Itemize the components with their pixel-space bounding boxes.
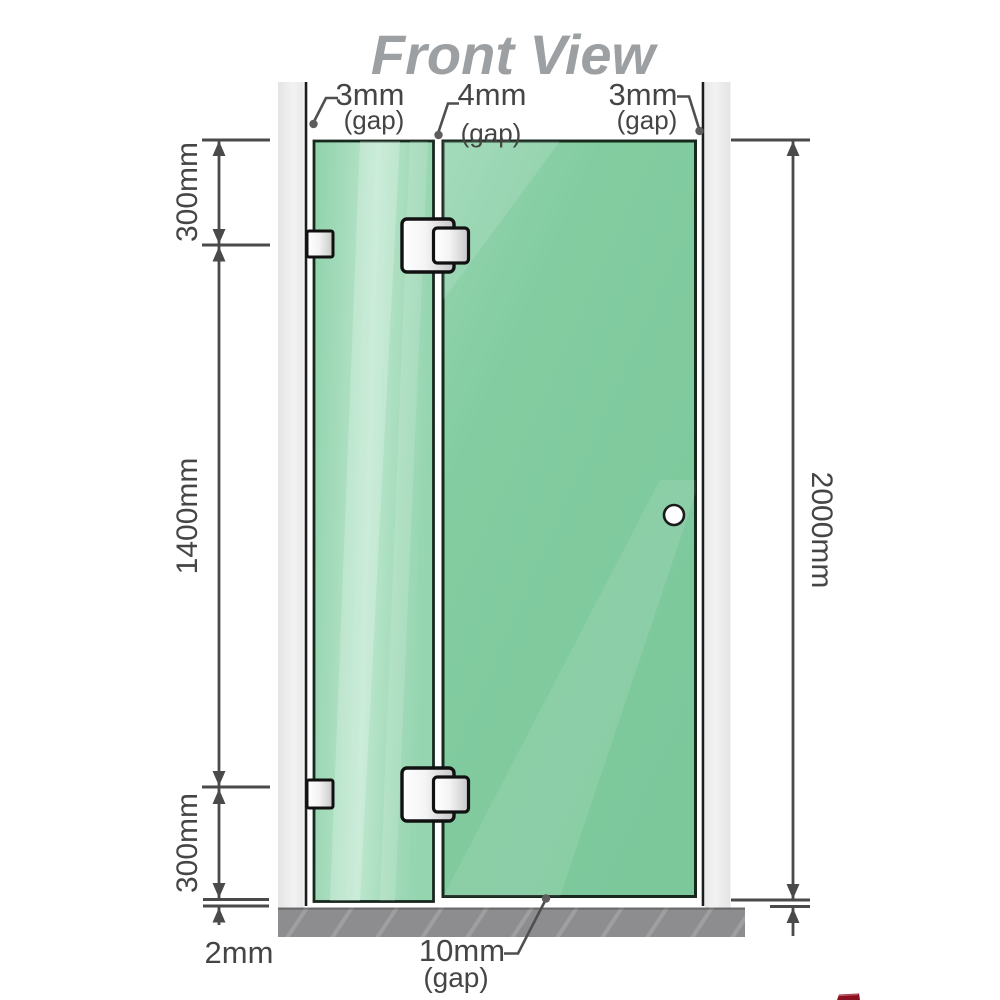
page-root: Front View: [0, 0, 1000, 1000]
dim-label-300-bottom: 300mm: [171, 793, 204, 893]
dim-arrow: [213, 229, 226, 244]
leader-dot: [309, 120, 317, 128]
dim-label-300-top: 300mm: [171, 142, 204, 242]
dim-label-1400: 1400mm: [171, 458, 204, 575]
leader-dot: [542, 894, 550, 902]
top-wall-bracket: [307, 231, 333, 257]
leader-line-4mm: [439, 104, 460, 133]
front-view-diagram: Front View: [0, 0, 1000, 1000]
door-knob: [664, 505, 684, 525]
leader-line-3mm-right: [677, 97, 699, 129]
dim-label-2000: 2000mm: [805, 472, 838, 589]
leader-dot: [695, 127, 703, 135]
dim-arrow: [213, 141, 226, 156]
dimension-right: [731, 140, 810, 936]
dim-arrow: [213, 789, 226, 804]
dimension-left: [202, 140, 270, 925]
left-wall-strip: [278, 82, 304, 908]
bottom-wall-bracket: [307, 780, 333, 808]
floor: [278, 903, 755, 941]
dim-arrow: [787, 908, 800, 923]
gap-note-10mm: (gap): [423, 962, 488, 993]
dim-arrow: [213, 883, 226, 898]
dim-arrow: [213, 908, 226, 923]
door-panel: [443, 141, 700, 897]
dim-arrow: [787, 884, 800, 899]
gap-note-right: (gap): [617, 105, 678, 135]
top-hinge: [402, 219, 469, 272]
right-wall-strip: [705, 82, 731, 908]
dim-arrow: [787, 141, 800, 156]
gap-note-mid: (gap): [461, 118, 522, 148]
dim-arrow: [213, 771, 226, 786]
right-wall: [703, 82, 731, 908]
leader-dot: [434, 131, 442, 139]
bottom-hinge: [402, 768, 469, 821]
dim-label-2mm: 2mm: [205, 935, 274, 970]
leader-line-3mm-left: [314, 98, 338, 122]
top-hinge-right-plate: [434, 228, 469, 263]
gap-label-4mm: 4mm: [458, 77, 527, 112]
gap-note-left: (gap): [344, 105, 405, 135]
left-wall: [278, 82, 306, 908]
dim-arrow: [213, 247, 226, 262]
bottom-hinge-right-plate: [434, 777, 469, 812]
